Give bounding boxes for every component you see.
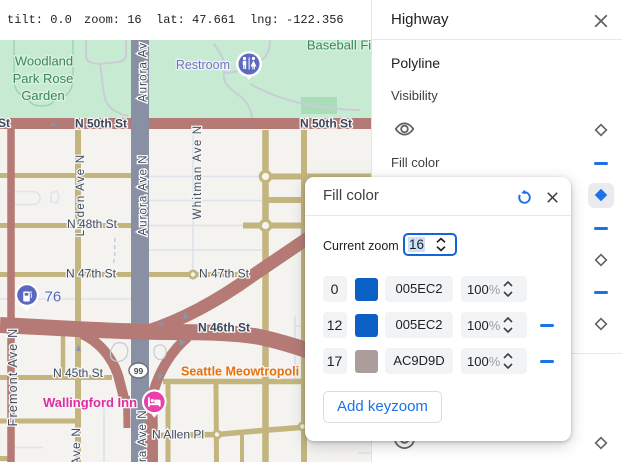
svg-text:Aurora Ave N: Aurora Ave N: [138, 154, 150, 235]
svg-text:99: 99: [134, 366, 144, 376]
svg-text:N 48th St: N 48th St: [67, 217, 118, 231]
svg-text:Aurora Av: Aurora Av: [138, 42, 150, 102]
svg-text:St: St: [0, 116, 10, 130]
svg-text:N 46th St: N 46th St: [198, 321, 250, 335]
svg-text:Seattle Meowtropoli: Seattle Meowtropoli: [181, 365, 299, 379]
svg-text:Aurora Ave N: Aurora Ave N: [137, 409, 149, 462]
svg-text:N 47th St: N 47th St: [66, 267, 117, 281]
svg-text:N 45th St: N 45th St: [53, 366, 104, 380]
svg-text:Restroom: Restroom: [176, 58, 230, 72]
svg-text:76: 76: [45, 289, 62, 306]
svg-text:N Allen Pl: N Allen Pl: [152, 428, 204, 442]
svg-text:N 47th St: N 47th St: [199, 267, 250, 281]
svg-text:N 50th St: N 50th St: [300, 117, 352, 131]
svg-text:Fremont Ave N: Fremont Ave N: [6, 328, 20, 427]
svg-text:Park Rose: Park Rose: [13, 71, 74, 86]
svg-text:Wallingford Inn: Wallingford Inn: [43, 395, 137, 410]
svg-text:Woodland: Woodland: [15, 54, 73, 69]
svg-text:N 50th St: N 50th St: [75, 117, 127, 131]
svg-text:Whitman Ave N: Whitman Ave N: [192, 125, 204, 220]
svg-text:Baseball Fi: Baseball Fi: [307, 40, 371, 53]
svg-text:Ave N: Ave N: [69, 427, 83, 462]
svg-text:Garden: Garden: [21, 88, 64, 103]
